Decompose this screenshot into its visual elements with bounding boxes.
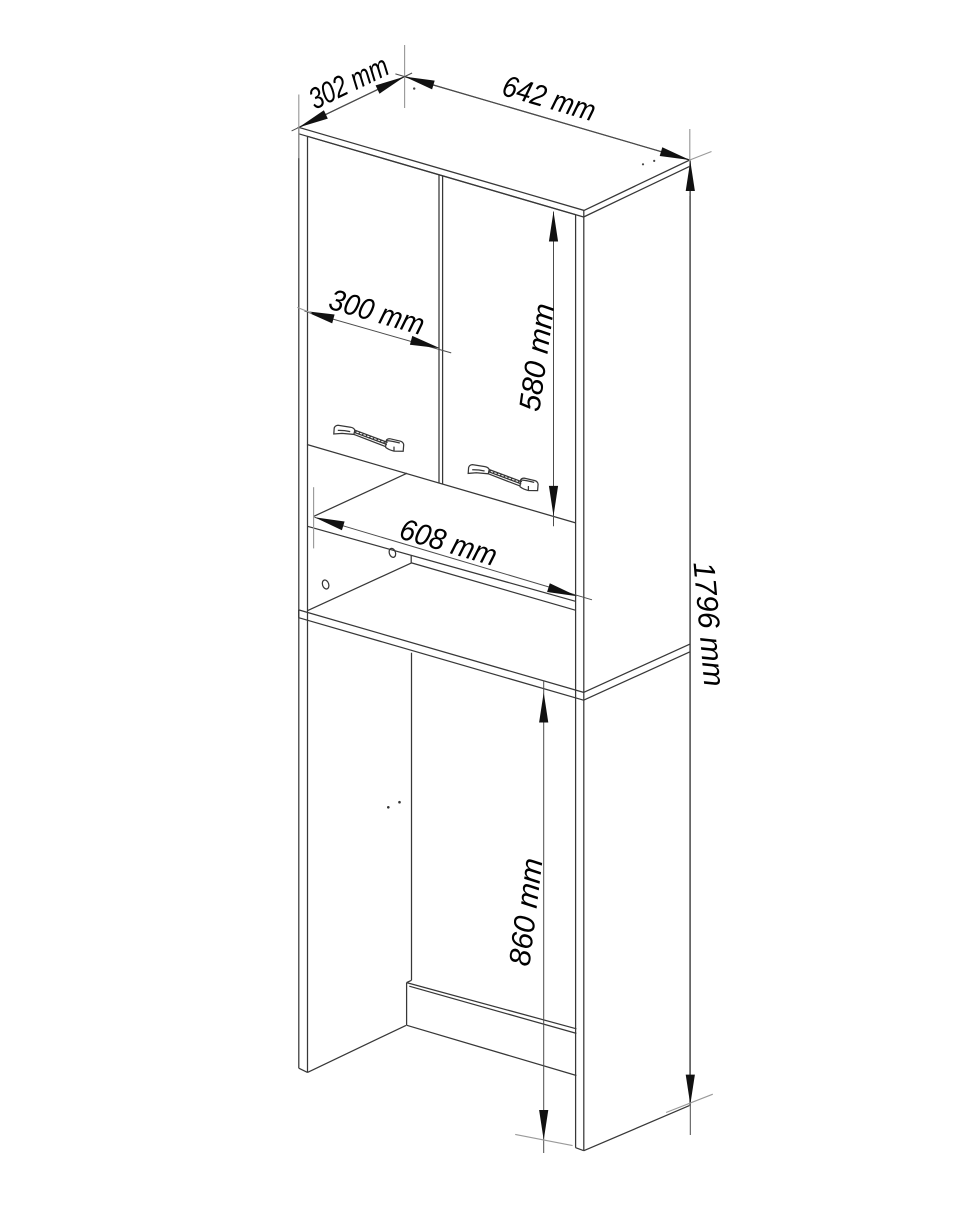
svg-text:302 mm: 302 mm bbox=[303, 49, 394, 116]
svg-text:608 mm: 608 mm bbox=[396, 513, 501, 573]
svg-text:580 mm: 580 mm bbox=[514, 301, 562, 413]
svg-text:860 mm: 860 mm bbox=[504, 856, 550, 968]
svg-text:1796 mm: 1796 mm bbox=[687, 560, 731, 687]
svg-text:300 mm: 300 mm bbox=[325, 283, 428, 342]
